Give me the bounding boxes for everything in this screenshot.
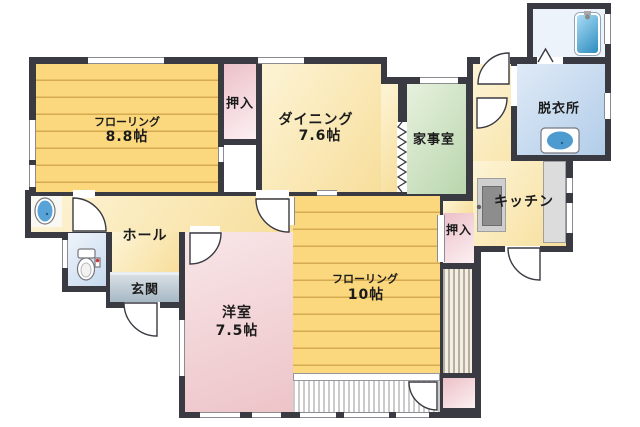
door-opening [73,190,95,198]
storage-corner [443,378,475,408]
window [396,412,429,418]
floor-plan: フローリング 8.8帖 押入 ダイニング 7.6帖 家事室 脱衣所 キッチン 押… [0,0,640,427]
exterior-notch [387,57,404,77]
window [344,412,389,418]
veranda-right [443,269,472,373]
window [300,412,336,418]
window [317,190,337,196]
window [29,165,36,187]
sliding-door-row [293,373,440,381]
label-dining-name: ダイニング [279,113,354,127]
label-dressing: 脱衣所 [538,103,580,116]
door-opening [505,246,540,252]
label-western-name: 洋室 [222,306,252,320]
window [218,147,224,162]
door-kitchen-back [508,248,540,280]
basin-alcove [31,196,62,227]
label-dining-size: 7.6帖 [299,129,342,143]
label-flooring88-size: 8.8帖 [106,130,149,144]
label-flooring88-name: フローリング [94,117,160,128]
label-flooring10-name: フローリング [332,274,398,285]
window [604,14,611,44]
window [604,93,611,119]
window [252,412,281,418]
window [179,320,185,376]
window [420,77,458,84]
hall-upper [31,196,293,232]
sliding-door [437,215,445,262]
veranda-bottom [293,381,440,412]
door-opening [537,57,563,64]
window [258,57,304,64]
window [88,57,164,64]
window [200,412,240,418]
sliding-door [287,197,295,225]
label-flooring10-size: 10帖 [348,288,384,302]
door-opening [124,302,160,308]
label-closet-top: 押入 [226,98,254,111]
room-kitchen-patch [443,201,473,213]
partition-gap [397,122,407,192]
closet-mid [443,213,474,263]
bathtub [575,13,600,55]
label-kitchen: キッチン [494,195,554,209]
label-entrance: 玄関 [131,284,159,297]
label-utility: 家事室 [413,134,455,147]
window [62,240,68,268]
label-closet-mid: 押入 [446,224,472,236]
door-opening [511,66,517,106]
room-toilet [68,233,106,286]
window [566,178,573,193]
label-hall: ホール [123,229,168,243]
label-western-size: 7.5帖 [216,324,259,338]
window [29,120,36,160]
window [566,203,573,233]
room-dining-ext [381,84,398,192]
door-opening [256,190,289,198]
wall-niche [224,145,256,192]
room-western [185,232,293,412]
door-opening [480,57,510,64]
door-opening [190,226,220,232]
